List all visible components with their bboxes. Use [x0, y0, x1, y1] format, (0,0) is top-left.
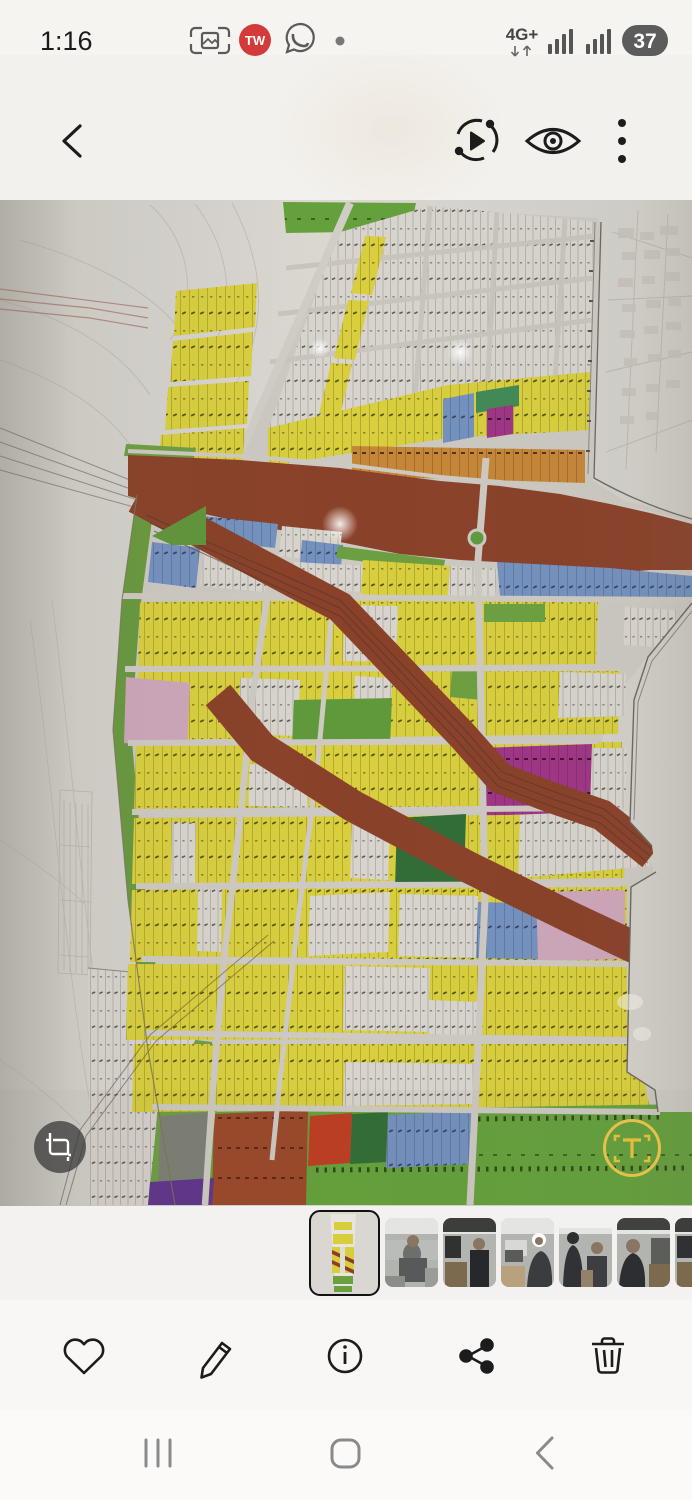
svg-text:1:16: 1:16	[40, 26, 93, 56]
svg-text:37: 37	[633, 30, 656, 53]
svg-text:4G+: 4G+	[506, 25, 539, 44]
svg-text:TW: TW	[245, 33, 266, 48]
